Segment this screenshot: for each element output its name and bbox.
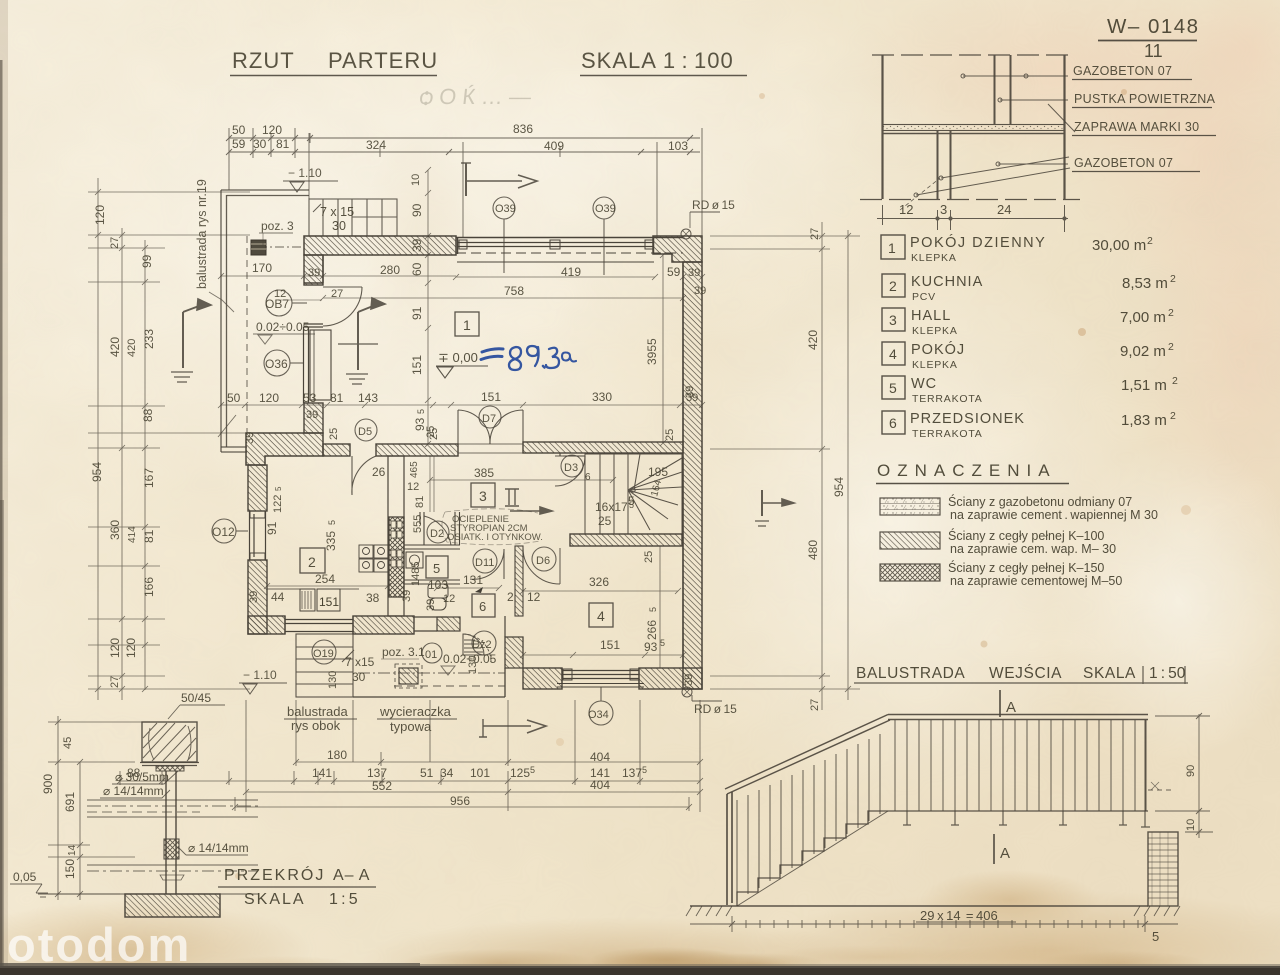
svg-text:836: 836 xyxy=(513,122,533,136)
svg-text:480: 480 xyxy=(806,540,820,560)
svg-text:93: 93 xyxy=(644,640,658,654)
svg-text:254: 254 xyxy=(315,572,335,586)
svg-text:101: 101 xyxy=(470,766,490,780)
svg-text:151: 151 xyxy=(481,390,501,404)
svg-text:8,53 m: 8,53 m xyxy=(1122,275,1168,292)
svg-text:7 x 15: 7 x 15 xyxy=(320,205,354,219)
svg-text:25: 25 xyxy=(428,428,440,440)
svg-text:GAZOBETON 07: GAZOBETON 07 xyxy=(1073,64,1172,78)
svg-text:PUSTKA POWIETRZNA: PUSTKA POWIETRZNA xyxy=(1074,92,1216,106)
svg-text:0.02÷0.05: 0.02÷0.05 xyxy=(256,320,310,334)
svg-text:27: 27 xyxy=(331,288,343,300)
svg-text:5: 5 xyxy=(648,607,658,612)
svg-text:na zaprawie cementowej M–50: na zaprawie cementowej M–50 xyxy=(950,574,1122,588)
svg-text:30: 30 xyxy=(332,219,346,233)
svg-text:90: 90 xyxy=(1185,765,1197,777)
svg-text:166: 166 xyxy=(142,577,156,597)
svg-text:335: 335 xyxy=(324,531,338,551)
svg-text:12: 12 xyxy=(443,593,455,605)
svg-text:12: 12 xyxy=(407,481,419,493)
svg-text:151: 151 xyxy=(600,638,620,652)
svg-text:11: 11 xyxy=(1144,41,1163,61)
svg-text:2: 2 xyxy=(1168,307,1174,319)
svg-text:141: 141 xyxy=(312,766,332,780)
svg-text:404: 404 xyxy=(590,778,610,792)
svg-text:39: 39 xyxy=(410,238,424,252)
svg-text:131: 131 xyxy=(463,573,483,587)
svg-text:552: 552 xyxy=(372,779,392,793)
svg-text:Ściany z gazobetonu odmiany: Ściany z gazobetonu odmiany 07 xyxy=(948,494,1132,509)
svg-text:TERRAKOTA: TERRAKOTA xyxy=(912,393,983,405)
svg-text:1 : 50: 1 : 50 xyxy=(1149,665,1186,682)
svg-text:103: 103 xyxy=(428,578,448,592)
svg-text:1: 1 xyxy=(888,240,896,256)
svg-text:0.02÷0.05: 0.02÷0.05 xyxy=(443,652,497,666)
svg-text:2: 2 xyxy=(889,278,897,294)
svg-text:ѻОЌ…—: ѻОЌ…— xyxy=(419,84,539,109)
svg-text:81: 81 xyxy=(330,391,344,405)
svg-text:39: 39 xyxy=(308,267,320,279)
svg-text:5: 5 xyxy=(327,520,337,525)
svg-text:12: 12 xyxy=(527,590,541,604)
svg-text:GAZOBETON 07: GAZOBETON 07 xyxy=(1074,156,1173,170)
svg-text:SKALA 1 : 100: SKALA 1 : 100 xyxy=(581,48,734,73)
svg-text:POKÓJ: POKÓJ xyxy=(911,341,965,358)
svg-text:120: 120 xyxy=(262,123,282,137)
svg-text:4: 4 xyxy=(889,346,897,362)
svg-text:25: 25 xyxy=(328,428,340,440)
svg-text:D11: D11 xyxy=(475,557,494,569)
svg-text:9,02 m: 9,02 m xyxy=(1120,343,1166,360)
svg-text:SKALA: SKALA xyxy=(1083,665,1136,682)
svg-text:PRZEKRÓJ: PRZEKRÓJ xyxy=(224,865,325,884)
svg-text:50/45: 50/45 xyxy=(181,691,211,705)
svg-text:WEJŚCIA: WEJŚCIA xyxy=(989,664,1062,682)
svg-text:900: 900 xyxy=(41,774,55,794)
svg-text:420: 420 xyxy=(126,339,138,357)
svg-text:91: 91 xyxy=(410,306,424,320)
svg-text:1485: 1485 xyxy=(410,562,422,586)
svg-text:0,05: 0,05 xyxy=(13,870,37,884)
svg-text:WC: WC xyxy=(911,376,937,392)
svg-text:419: 419 xyxy=(561,265,581,279)
svg-text:1,51 m: 1,51 m xyxy=(1121,377,1167,394)
svg-text:POKÓJ DZIENNY: POKÓJ DZIENNY xyxy=(910,234,1046,251)
svg-text:OSIATK. I OTYNKOW.: OSIATK. I OTYNKOW. xyxy=(447,532,543,543)
svg-text:⌀ 14/14mm: ⌀ 14/14mm xyxy=(188,841,249,855)
svg-text:TERRAKOTA: TERRAKOTA xyxy=(912,428,983,440)
svg-text:7 x15: 7 x15 xyxy=(345,655,375,669)
svg-text:D3: D3 xyxy=(564,462,578,474)
svg-text:RZUT: RZUT xyxy=(232,48,295,73)
svg-text:26: 26 xyxy=(372,465,386,479)
svg-text:137: 137 xyxy=(622,766,642,780)
svg-text:60: 60 xyxy=(410,262,424,276)
svg-text:− 1.10: − 1.10 xyxy=(243,668,277,682)
svg-text:39: 39 xyxy=(694,285,706,297)
svg-text:51: 51 xyxy=(420,766,434,780)
svg-text:12: 12 xyxy=(899,202,913,217)
svg-text:14: 14 xyxy=(67,844,78,856)
svg-text:81: 81 xyxy=(142,529,156,543)
svg-text:50: 50 xyxy=(232,123,246,137)
svg-text:25: 25 xyxy=(664,429,676,441)
svg-text:27: 27 xyxy=(809,228,821,240)
svg-text:25: 25 xyxy=(598,514,612,528)
svg-text:KLEPKA: KLEPKA xyxy=(911,252,957,264)
svg-text:A: A xyxy=(1000,845,1010,862)
svg-text:RD ø 15: RD ø 15 xyxy=(694,702,737,716)
svg-text:130: 130 xyxy=(327,671,339,689)
svg-text:120: 120 xyxy=(108,638,122,658)
svg-text:A– A: A– A xyxy=(333,867,370,884)
svg-text:2: 2 xyxy=(1170,410,1176,422)
svg-text:balustrada rys nr.19: balustrada rys nr.19 xyxy=(195,179,209,289)
svg-text:954: 954 xyxy=(90,462,104,482)
svg-text:16x17: 16x17 xyxy=(595,500,628,514)
svg-text:137: 137 xyxy=(367,766,387,780)
svg-text:O12: O12 xyxy=(212,525,235,539)
svg-text:404: 404 xyxy=(590,750,610,764)
svg-text:− 1.10: − 1.10 xyxy=(288,166,322,180)
svg-text:rys obok: rys obok xyxy=(291,718,341,733)
svg-text:KLEPKA: KLEPKA xyxy=(912,325,958,337)
svg-text:2: 2 xyxy=(1147,235,1153,247)
svg-text:151: 151 xyxy=(410,355,424,375)
svg-text:120: 120 xyxy=(124,638,138,658)
svg-text:6: 6 xyxy=(889,415,897,431)
svg-text:Ściany z cegły pełnej K–10: Ściany z cegły pełnej K–100 xyxy=(948,528,1104,543)
svg-text:KLEPKA: KLEPKA xyxy=(912,359,958,371)
svg-text:10: 10 xyxy=(1185,819,1197,831)
svg-text:59: 59 xyxy=(232,137,246,151)
svg-text:125: 125 xyxy=(510,766,530,780)
svg-text:143: 143 xyxy=(358,391,378,405)
svg-text:360: 360 xyxy=(108,520,122,540)
svg-text:ZAPRAWA MARKI 30: ZAPRAWA MARKI 30 xyxy=(1074,120,1199,134)
svg-text:2: 2 xyxy=(1168,341,1174,353)
svg-text:5: 5 xyxy=(530,765,535,775)
svg-text:1,83 m: 1,83 m xyxy=(1121,412,1167,429)
svg-text:27: 27 xyxy=(809,699,821,711)
svg-text:465: 465 xyxy=(409,461,420,478)
svg-text:122: 122 xyxy=(272,495,284,513)
svg-text:758: 758 xyxy=(504,284,524,298)
svg-text:D5: D5 xyxy=(358,426,372,438)
svg-text:⌀ 30/5mm: ⌀ 30/5mm xyxy=(115,770,169,784)
svg-text:420: 420 xyxy=(108,337,122,357)
svg-text:3: 3 xyxy=(940,202,947,217)
svg-text:RD ø 15: RD ø 15 xyxy=(692,198,735,212)
svg-text:45: 45 xyxy=(62,737,74,749)
svg-text:2: 2 xyxy=(1172,375,1178,387)
svg-text:170: 170 xyxy=(252,261,272,275)
svg-text:typowa: typowa xyxy=(390,719,432,734)
svg-text:81: 81 xyxy=(276,137,290,151)
svg-text:01: 01 xyxy=(425,649,437,661)
svg-text:5: 5 xyxy=(1152,929,1159,944)
svg-text:W– 0148: W– 0148 xyxy=(1107,15,1200,38)
svg-text:KUCHNIA: KUCHNIA xyxy=(911,274,983,290)
svg-text:39: 39 xyxy=(306,409,318,421)
svg-text:D6: D6 xyxy=(536,555,550,567)
svg-text:na zaprawie cement . wapien: na zaprawie cement . wapiennej M 30 xyxy=(950,508,1158,522)
svg-text:90: 90 xyxy=(410,203,424,217)
svg-text:3955: 3955 xyxy=(645,338,659,365)
svg-text:na zaprawie cem. wap. M– 30: na zaprawie cem. wap. M– 30 xyxy=(950,542,1116,556)
svg-text:5: 5 xyxy=(660,638,665,648)
svg-text:385: 385 xyxy=(474,466,494,480)
svg-text:39: 39 xyxy=(244,432,256,444)
svg-text:O19: O19 xyxy=(313,648,334,660)
svg-text:39: 39 xyxy=(683,674,695,686)
svg-text:420: 420 xyxy=(806,330,820,350)
svg-text:326: 326 xyxy=(589,575,609,589)
svg-text:6: 6 xyxy=(479,599,486,614)
svg-text:39: 39 xyxy=(425,599,437,611)
svg-text:414: 414 xyxy=(127,526,138,543)
svg-text:34: 34 xyxy=(440,766,454,780)
svg-text:120: 120 xyxy=(259,391,279,405)
svg-text:PARTERU: PARTERU xyxy=(328,48,438,73)
svg-text:BALUSTRADA: BALUSTRADA xyxy=(856,665,965,682)
svg-text:30: 30 xyxy=(253,137,267,151)
svg-text:167: 167 xyxy=(142,468,156,488)
svg-text:balustrada: balustrada xyxy=(287,704,348,719)
svg-text:266: 266 xyxy=(645,620,659,640)
svg-text:SKALA: SKALA xyxy=(244,891,306,908)
svg-text:Dż2: Dż2 xyxy=(472,639,492,651)
svg-text:⌀ 14/14mm: ⌀ 14/14mm xyxy=(103,784,164,798)
svg-text:691: 691 xyxy=(63,792,77,812)
svg-text:10: 10 xyxy=(410,174,422,186)
svg-text:4: 4 xyxy=(597,608,605,624)
svg-text:PRZEDSIONEK: PRZEDSIONEK xyxy=(910,411,1025,427)
svg-text:5: 5 xyxy=(889,380,897,396)
svg-text:409: 409 xyxy=(544,139,564,153)
svg-text:50: 50 xyxy=(227,391,241,405)
svg-text:O39: O39 xyxy=(495,203,516,215)
svg-text:D2: D2 xyxy=(430,528,444,540)
svg-text:7,00 m: 7,00 m xyxy=(1120,309,1166,326)
svg-text:3: 3 xyxy=(889,312,897,328)
svg-text:∓ 0,00: ∓ 0,00 xyxy=(438,350,478,365)
svg-text:1 : 5: 1 : 5 xyxy=(329,891,358,908)
svg-text:91: 91 xyxy=(265,521,279,535)
svg-text:A: A xyxy=(1006,699,1016,716)
svg-text:24: 24 xyxy=(997,202,1011,217)
svg-text:2: 2 xyxy=(507,590,514,604)
svg-text:2: 2 xyxy=(308,554,316,570)
svg-text:555: 555 xyxy=(412,515,424,533)
svg-text:39: 39 xyxy=(688,267,700,279)
svg-text:D7: D7 xyxy=(482,413,496,425)
svg-text:180: 180 xyxy=(327,748,347,762)
svg-text:OZNACZENIA: OZNACZENIA xyxy=(877,461,1057,480)
svg-text:53: 53 xyxy=(303,391,317,405)
svg-text:150: 150 xyxy=(63,859,77,879)
svg-text:39: 39 xyxy=(684,386,696,398)
svg-text:25: 25 xyxy=(643,551,655,563)
svg-text:otodom: otodom xyxy=(7,918,191,971)
svg-text:6: 6 xyxy=(585,472,591,483)
svg-text:39: 39 xyxy=(248,591,260,603)
svg-text:wycieraczka: wycieraczka xyxy=(379,704,452,719)
svg-text:59: 59 xyxy=(667,265,681,279)
svg-text:39: 39 xyxy=(401,590,413,602)
svg-text:330: 330 xyxy=(592,390,612,404)
svg-text:5: 5 xyxy=(274,486,283,491)
svg-text:956: 956 xyxy=(450,794,470,808)
svg-text:324: 324 xyxy=(366,138,386,152)
svg-text:195: 195 xyxy=(648,465,668,479)
svg-text:12: 12 xyxy=(274,288,286,300)
svg-text:44: 44 xyxy=(271,590,285,604)
svg-text:1: 1 xyxy=(463,317,471,333)
svg-text:O39: O39 xyxy=(595,203,616,215)
svg-text:O34: O34 xyxy=(588,709,609,721)
svg-text:27: 27 xyxy=(109,237,121,249)
svg-text:280: 280 xyxy=(380,263,400,277)
svg-text:30: 30 xyxy=(352,670,366,684)
svg-text:120: 120 xyxy=(93,205,107,225)
svg-text:5: 5 xyxy=(416,409,426,414)
svg-text:5: 5 xyxy=(628,494,635,508)
svg-text:81: 81 xyxy=(414,496,426,508)
svg-text:29 x 14 = 406: 29 x 14 = 406 xyxy=(920,908,998,923)
svg-text:poz. 3.1: poz. 3.1 xyxy=(382,645,425,659)
svg-text:151: 151 xyxy=(319,595,339,609)
svg-text:3: 3 xyxy=(479,488,487,504)
svg-text:30,00 m: 30,00 m xyxy=(1092,237,1146,254)
svg-text:HALL: HALL xyxy=(911,308,951,324)
svg-text:PCV: PCV xyxy=(912,291,936,303)
svg-text:954: 954 xyxy=(832,477,846,497)
svg-text:103: 103 xyxy=(668,139,688,153)
svg-text:233: 233 xyxy=(142,329,156,349)
svg-text:99: 99 xyxy=(140,254,154,268)
svg-text:Ściany z cegły pełnej K–1: Ściany z cegły pełnej K–150 xyxy=(948,560,1104,575)
svg-text:5: 5 xyxy=(642,765,647,775)
svg-text:5: 5 xyxy=(433,561,440,576)
svg-text:poz. 3: poz. 3 xyxy=(261,219,294,233)
svg-text:O36: O36 xyxy=(265,357,288,371)
svg-text:2: 2 xyxy=(1170,273,1176,285)
svg-text:27: 27 xyxy=(109,676,121,688)
svg-text:88: 88 xyxy=(141,408,155,422)
svg-text:38: 38 xyxy=(366,591,380,605)
